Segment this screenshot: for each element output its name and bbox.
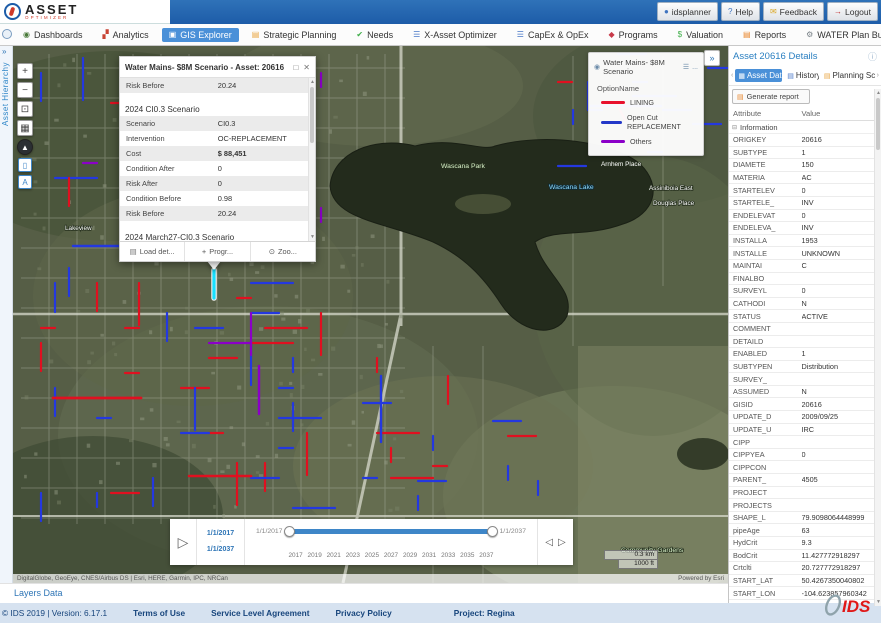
popup-pointer — [207, 261, 221, 270]
legend-entry: Others — [589, 134, 703, 149]
attribute-name: INSTALLA — [729, 236, 802, 245]
attribute-row[interactable]: MAINTAIC — [729, 260, 874, 273]
home-extent-button[interactable]: ⊡ — [17, 101, 33, 117]
nav-tab-label: Programs — [619, 30, 658, 40]
action-label: Load det... — [140, 247, 175, 256]
field-label: Condition After — [120, 164, 218, 173]
valuation-icon: $ — [678, 31, 682, 39]
timeline-step-buttons: ◁ ▷ — [537, 519, 573, 565]
nav-tab-reports[interactable]: ▤Reports — [736, 28, 793, 42]
scroll-down-icon[interactable]: ▼ — [309, 234, 315, 240]
legend-field-name: OptionName — [589, 80, 703, 95]
attribute-value: UNKNOWN — [802, 249, 875, 258]
nav-tab-label: Dashboards — [34, 30, 83, 40]
basemap-button[interactable]: ▦ — [17, 120, 33, 136]
rail-expand-icon[interactable]: » — [2, 47, 6, 56]
privacy-policy-link[interactable]: Privacy Policy — [335, 608, 391, 618]
tab-label: History — [796, 71, 819, 80]
history-icon: ▤ — [787, 72, 794, 80]
user-icon: ● — [664, 7, 669, 16]
slider-left-label: 1/1/2017 — [252, 528, 286, 535]
reports-icon: ▤ — [743, 31, 751, 39]
action-label: Zoo... — [278, 247, 297, 256]
map-attribution: DigitalGlobe, GeoEye, CNES/Airbus DS | E… — [13, 574, 728, 583]
attribute-value: 11.427772918297 — [802, 551, 875, 560]
attribute-row[interactable]: DETAILD — [729, 336, 874, 349]
select-tool-button[interactable]: ▯ — [18, 158, 32, 172]
asset-hierarchy-rail[interactable]: » Asset Hierarchy — [0, 46, 13, 583]
attribute-name: UPDATE_D — [729, 412, 802, 421]
map-label: Arnhem Place — [601, 161, 642, 168]
panel-scrollbar[interactable]: ▲ ▼ — [874, 89, 881, 606]
attribute-name: CATHODI — [729, 299, 802, 308]
tick-label: 2017 — [288, 552, 302, 559]
needs-icon: ✔ — [356, 31, 363, 39]
attribute-row[interactable]: HydCrit9.3 — [729, 537, 874, 550]
attribute-name: Crtclti — [729, 563, 802, 572]
attribute-row[interactable]: START_LAT50.4267350040802 — [729, 575, 874, 588]
attribute-name: DIAMETE — [729, 160, 802, 169]
popup-section-title: 2024 March27-CI0.3 Scenario — [120, 227, 308, 241]
slider-handle-end[interactable] — [487, 526, 498, 537]
nav-tab-analytics[interactable]: ▞Analytics — [96, 28, 156, 42]
ids-logo-text: IDS — [842, 597, 871, 616]
collapse-section-icon[interactable]: ⊟ — [732, 124, 737, 131]
attribute-row[interactable]: SUBTYPENDistribution — [729, 361, 874, 374]
legend-layer-title: Water Mains- $8M Scenario — [603, 58, 680, 76]
tab-planning-sce[interactable]: ▤Planning Sce — [821, 69, 875, 82]
attribute-value: Distribution — [802, 362, 875, 371]
popup-field-row: InterventionOC-REPLACEMENT — [120, 131, 308, 146]
range-start: 1/1/2017 — [207, 530, 234, 538]
popup-field-row: Condition Before0.98 — [120, 191, 308, 206]
tick-label: 2027 — [384, 552, 398, 559]
idsplanner-button[interactable]: ●idsplanner — [657, 2, 718, 21]
timeline-range: 1/1/2017 - 1/1/2037 — [197, 519, 245, 565]
feedback-button[interactable]: ✉Feedback — [763, 2, 824, 21]
water-plan-builder-icon: ⚙ — [806, 31, 813, 39]
popup-actions: ▤Load det...+Progr...⊙Zoo... — [120, 241, 315, 261]
tick-label: 2035 — [460, 552, 474, 559]
attribute-value: 1 — [802, 148, 875, 157]
field-value: $ 88,451 — [218, 149, 308, 158]
powered-by-esri: Powered by Esri — [678, 575, 724, 582]
attribute-row[interactable]: SURVEYL0 — [729, 285, 874, 298]
asset-details-panel: Asset 20616 Details ⓘ ‹▦Asset Data▤Histo… — [728, 46, 881, 603]
field-value: OC-REPLACEMENT — [218, 134, 308, 143]
panel-collapse-button[interactable]: » — [704, 50, 720, 66]
program-button[interactable]: +Progr... — [185, 242, 250, 261]
attribute-name: SURVEY_ — [729, 375, 802, 384]
attribute-row[interactable]: CIPPYEA0 — [729, 449, 874, 462]
field-value: 0.98 — [218, 194, 308, 203]
field-label: Scenario — [120, 119, 218, 128]
attribute-name: STATUS — [729, 312, 802, 321]
attribute-row[interactable]: STARTELEV0 — [729, 184, 874, 197]
top-header-bar: ASSET OPTIMIZER ●idsplanner?Help✉Feedbac… — [0, 0, 881, 24]
attribute-row[interactable]: INSTALLA1953 — [729, 235, 874, 248]
report-icon: ▤ — [737, 93, 744, 101]
help-button[interactable]: ?Help — [721, 2, 760, 21]
range-end: 1/1/2037 — [207, 546, 234, 554]
field-value: 0 — [218, 164, 308, 173]
analytics-icon: ▞ — [103, 31, 109, 39]
compass-button[interactable]: ▲ — [17, 139, 33, 155]
attribute-value: 50.4267350040802 — [802, 576, 875, 585]
scale-ft: 1000 ft — [618, 560, 658, 569]
attribute-row[interactable]: FINALBO — [729, 273, 874, 286]
popup-field-row: Risk Before20.24 — [120, 78, 308, 93]
attribute-name: INSTALLE — [729, 249, 802, 258]
legend-panel: ◉ Water Mains- $8M Scenario ☰ ... Option… — [588, 52, 704, 156]
attribute-name: BodCrit — [729, 551, 802, 560]
panel-body: ▤ Generate report Attribute Value ⊟ Info… — [729, 89, 881, 606]
attribute-value: 0 — [802, 211, 875, 220]
nav-tab-x-asset-optimizer[interactable]: ☰X-Asset Optimizer — [406, 28, 504, 42]
copyright-text: © IDS 2019 | Version: 6.17.1 — [2, 608, 107, 618]
help-icon: ? — [728, 7, 732, 16]
attribute-name: FINALBO — [729, 274, 802, 283]
attribute-row[interactable]: ENDELEVAT0 — [729, 210, 874, 223]
gis-explorer-icon: ▣ — [169, 31, 177, 39]
button-label: Logout — [845, 7, 871, 17]
popup-field-row: Cost$ 88,451 — [120, 146, 308, 161]
legend-swatch — [601, 140, 625, 143]
legend-entries: LININGOpen Cut REPLACEMENTOthers — [589, 95, 703, 149]
attribute-row[interactable]: PARENT_4505 — [729, 474, 874, 487]
attribute-name: MAINTAI — [729, 261, 802, 270]
attribute-value: 4505 — [802, 475, 875, 484]
button-label: Help — [735, 7, 752, 17]
information-label: Information — [740, 123, 778, 132]
popup-maximize-icon[interactable]: □ — [293, 63, 298, 72]
attribute-value: INV — [802, 223, 875, 232]
zoom-to-button[interactable]: ⊙Zoo... — [251, 242, 315, 261]
attribute-row[interactable]: CIPP — [729, 436, 874, 449]
zoom-in-button[interactable]: + — [17, 63, 33, 79]
attribute-name: PARENT_ — [729, 475, 802, 484]
map-controls: +−⊡▦▲▯A — [17, 63, 33, 189]
attribute-value: 2009/09/25 — [802, 412, 875, 421]
attribute-name: SURVEYL — [729, 286, 802, 295]
attribute-name: STARTELE_ — [729, 198, 802, 207]
programs-icon: ◆ — [609, 31, 615, 39]
attribute-row[interactable]: CATHODIN — [729, 298, 874, 311]
field-label: Condition Before — [120, 194, 218, 203]
attribute-row[interactable]: INSTALLEUNKNOWN — [729, 247, 874, 260]
attribute-value: 79.9098064448999 — [802, 513, 875, 522]
tick-label: 2025 — [365, 552, 379, 559]
map-label: Wascana Park — [441, 163, 486, 170]
layer-visibility-icon[interactable]: ◉ — [594, 63, 600, 71]
layers-data-link[interactable]: Layers Data — [14, 588, 63, 598]
nav-tab-water-plan-builder[interactable]: ⚙WATER Plan Builder✕ — [799, 28, 881, 42]
attribute-name: HydCrit — [729, 538, 802, 547]
attribute-value: 20616 — [802, 135, 875, 144]
app-menu-icon[interactable] — [2, 29, 12, 39]
attribute-name: STARTELEV — [729, 186, 802, 195]
field-label: Risk Before — [120, 81, 218, 90]
popup-field-row: ScenarioCI0.3 — [120, 116, 308, 131]
attribute-row[interactable]: ORIGKEY20616 — [729, 134, 874, 147]
legend-more-icon[interactable]: ... — [692, 64, 698, 71]
attribute-row[interactable]: GISID20616 — [729, 398, 874, 411]
tabs-scroll-right-icon[interactable]: › — [877, 72, 879, 79]
tab-label: Planning Sce — [833, 71, 875, 80]
slider-track[interactable] — [286, 525, 495, 539]
tab-label: Asset Data — [747, 71, 782, 80]
popup-scrollbar[interactable]: ▲ ▼ — [308, 78, 315, 241]
field-value: 20.24 — [218, 209, 308, 218]
tabs-scroll-left-icon[interactable]: ‹ — [731, 72, 733, 79]
attribute-name: ASSUMED — [729, 387, 802, 396]
nav-tab-label: GIS Explorer — [180, 30, 232, 40]
attribute-value: ACTIVE — [802, 312, 875, 321]
legend-entry-label: Others — [630, 137, 652, 146]
asset-data-icon: ▦ — [738, 72, 745, 80]
legend-swatch — [601, 101, 625, 104]
attribute-name: GISID — [729, 400, 802, 409]
attribute-name: ENDELEVA_ — [729, 223, 802, 232]
attribute-name: ENABLED — [729, 349, 802, 358]
panel-title: Asset 20616 Details — [733, 51, 868, 62]
attribution-text: DigitalGlobe, GeoEye, CNES/Airbus DS | E… — [17, 575, 228, 582]
attribute-row[interactable]: ENABLED1 — [729, 348, 874, 361]
field-label: Risk After — [120, 179, 218, 188]
layers-strip: Layers Data — [0, 583, 728, 603]
attribute-row[interactable]: SURVEY_ — [729, 373, 874, 386]
scroll-up-icon[interactable]: ▲ — [875, 90, 881, 96]
field-label: Risk Before — [120, 209, 218, 218]
attribute-name: SUBTYPE — [729, 148, 802, 157]
nav-tab-label: CapEx & OpEx — [528, 30, 589, 40]
nav-tab-capex-opex[interactable]: ☰CapEx & OpEx — [510, 28, 596, 42]
attribute-row[interactable]: DIAMETE150 — [729, 159, 874, 172]
map-label: Lakeview — [65, 225, 92, 232]
planning-icon: ▤ — [824, 72, 831, 80]
attribute-name: START_LAT — [729, 576, 802, 585]
document-icon: ▤ — [130, 247, 137, 256]
nav-tab-programs[interactable]: ◆Programs — [602, 28, 665, 42]
attribute-row[interactable]: UPDATE_UIRC — [729, 424, 874, 437]
attribute-row[interactable]: CIPPCON — [729, 461, 874, 474]
nav-tab-label: WATER Plan Builder — [817, 30, 881, 40]
attribute-value: 9.3 — [802, 538, 875, 547]
attribute-value: 0 — [802, 186, 875, 195]
legend-entry-label: LINING — [630, 98, 654, 107]
scale-km: 0.3 km — [604, 550, 658, 560]
time-slider: ▷ 1/1/2017 - 1/1/2037 1/1/2017 1/1/2037 … — [170, 519, 573, 565]
attribute-row[interactable]: ASSUMEDN — [729, 386, 874, 399]
attribute-name: CIPP — [729, 438, 802, 447]
legend-list-icon[interactable]: ☰ — [683, 63, 689, 71]
attribute-value: N — [802, 387, 875, 396]
attribute-value: 150 — [802, 160, 875, 169]
magnifier-icon: ⊙ — [269, 247, 275, 256]
asset-popup: Water Mains- $8M Scenario - Asset: 20616… — [119, 56, 316, 262]
nav-tab-label: Analytics — [113, 30, 149, 40]
generate-report-button[interactable]: ▤ Generate report — [732, 89, 810, 104]
ids-brand-logo: IDS — [822, 591, 878, 619]
slider-handle-start[interactable] — [284, 526, 295, 537]
attribute-name: PROJECTS — [729, 501, 802, 510]
action-label: Progr... — [209, 247, 233, 256]
attribute-tool-button[interactable]: A — [18, 175, 32, 189]
attribute-row[interactable]: PROJECT — [729, 487, 874, 500]
attribute-row[interactable]: STARTELE_INV — [729, 197, 874, 210]
footer-bar: © IDS 2019 | Version: 6.17.1 Terms of Us… — [0, 603, 881, 623]
attribute-name: ENDELEVAT — [729, 211, 802, 220]
attribute-column-header: Attribute — [729, 109, 802, 118]
map-label: Douglas Place — [653, 200, 695, 207]
attribute-row[interactable]: ENDELEVA_INV — [729, 222, 874, 235]
tick-label: 2021 — [327, 552, 341, 559]
nav-tab-label: X-Asset Optimizer — [424, 30, 497, 40]
popup-body: ▲ ▼ Risk Before20.242024 CI0.3 ScenarioS… — [120, 78, 315, 241]
field-value: 20.24 — [218, 81, 308, 90]
attribute-row[interactable]: SHAPE_L79.9098064448999 — [729, 512, 874, 525]
strategic-planning-icon: ▤ — [252, 31, 260, 39]
nav-tab-label: Strategic Planning — [263, 30, 336, 40]
service-level-agreement-link[interactable]: Service Level Agreement — [211, 608, 309, 618]
attribute-value: AC — [802, 173, 875, 182]
logout-icon: → — [834, 7, 842, 16]
tick-label: 2019 — [308, 552, 322, 559]
attribute-value: IRC — [802, 425, 875, 434]
attribute-value: 1 — [802, 349, 875, 358]
attribute-name: COMMENT — [729, 324, 802, 333]
play-button[interactable]: ▷ — [170, 519, 197, 565]
feedback-icon: ✉ — [770, 7, 777, 16]
logout-button[interactable]: →Logout — [827, 2, 878, 21]
attribute-name: DETAILD — [729, 337, 802, 346]
attribute-row[interactable]: UPDATE_D2009/09/25 — [729, 411, 874, 424]
logo-text-asset: ASSET — [25, 4, 78, 15]
asset-hierarchy-label: Asset Hierarchy — [1, 62, 10, 126]
panel-tabs: ‹▦Asset Data▤History▤Planning Sce› — [729, 66, 881, 86]
plus-icon: + — [202, 247, 206, 256]
attribute-name: CIPPYEA — [729, 450, 802, 459]
attribute-value: N — [802, 299, 875, 308]
slider-ticks: 2017201920212023202520272029203120332035… — [286, 550, 495, 559]
attribute-table-header: Attribute Value — [729, 107, 874, 121]
attribute-row[interactable]: SUBTYPE1 — [729, 147, 874, 160]
attribute-value: 20616 — [802, 400, 875, 409]
legend-entry: LINING — [589, 95, 703, 110]
nav-tab-gis-explorer[interactable]: ▣GIS Explorer — [162, 28, 239, 42]
map-label: Wascana Lake — [549, 184, 594, 191]
nav-tab-strategic-planning[interactable]: ▤Strategic Planning — [245, 28, 344, 42]
slider-right-label: 1/1/2037 — [496, 528, 530, 535]
popup-field-row: Condition After0 — [120, 161, 308, 176]
popup-section-title: 2024 CI0.3 Scenario — [120, 99, 308, 116]
legend-entry: Open Cut REPLACEMENT — [589, 110, 703, 134]
attribute-row[interactable]: pipeAge63 — [729, 524, 874, 537]
terms-of-use-link[interactable]: Terms of Use — [133, 608, 185, 618]
attribute-row[interactable]: PROJECTS — [729, 499, 874, 512]
attribute-row[interactable]: COMMENT — [729, 323, 874, 336]
attribute-name: CIPPCON — [729, 463, 802, 472]
popup-close-icon[interactable]: ✕ — [303, 63, 310, 72]
map-scalebar: 0.3 km 1000 ft — [604, 550, 658, 569]
popup-title: Water Mains- $8M Scenario - Asset: 20616 — [125, 63, 288, 72]
header-action-buttons: ●idsplanner?Help✉Feedback→Logout — [657, 2, 878, 21]
attribute-name: SUBTYPEN — [729, 362, 802, 371]
attribute-row[interactable]: BodCrit11.427772918297 — [729, 550, 874, 563]
attribute-row[interactable]: STATUSACTIVE — [729, 310, 874, 323]
field-value: 0 — [218, 179, 308, 188]
step-back-button[interactable]: ◁ — [545, 537, 553, 548]
panel-info-icon[interactable]: ⓘ — [868, 50, 877, 63]
nav-tab-label: Valuation — [686, 30, 723, 40]
asset-optimizer-logo-icon — [4, 3, 21, 20]
attribute-name: ORIGKEY — [729, 135, 802, 144]
scroll-up-icon[interactable]: ▲ — [309, 79, 315, 85]
load-details-button[interactable]: ▤Load det... — [120, 242, 185, 261]
value-column-header: Value — [802, 109, 875, 118]
attribute-name: MATERIA — [729, 173, 802, 182]
nav-tab-dashboards[interactable]: ◉Dashboards — [16, 28, 90, 42]
tick-label: 2037 — [479, 552, 493, 559]
step-forward-button[interactable]: ▷ — [558, 537, 566, 548]
tick-label: 2023 — [346, 552, 360, 559]
attribute-value: 1953 — [802, 236, 875, 245]
attribute-name: START_LON — [729, 589, 802, 598]
attribute-name: UPDATE_U — [729, 425, 802, 434]
attribute-name: pipeAge — [729, 526, 802, 535]
attribute-row[interactable]: MATERIAAC — [729, 172, 874, 185]
information-section-header[interactable]: ⊟ Information — [729, 121, 874, 134]
map-label: Assiniboia East — [649, 185, 693, 192]
zoom-out-button[interactable]: − — [17, 82, 33, 98]
button-label: Feedback — [780, 7, 817, 17]
attribute-row[interactable]: Crtclti20.727772918297 — [729, 562, 874, 575]
project-label: Project: Regina — [454, 608, 515, 618]
attribute-value: 0 — [802, 286, 875, 295]
attribute-value: C — [802, 261, 875, 270]
tick-label: 2033 — [441, 552, 455, 559]
generate-report-label: Generate report — [747, 92, 799, 101]
main-navigation-bar: ◉Dashboards▞Analytics▣GIS Explorer▤Strat… — [0, 24, 881, 46]
capex-opex-icon: ☰ — [517, 31, 524, 39]
tab-history[interactable]: ▤History — [784, 69, 819, 82]
app-root: ASSET OPTIMIZER ●idsplanner?Help✉Feedbac… — [0, 0, 881, 623]
tick-label: 2031 — [422, 552, 436, 559]
attribute-value: INV — [802, 198, 875, 207]
legend-entry-label: Open Cut REPLACEMENT — [627, 113, 703, 131]
tick-label: 2029 — [403, 552, 417, 559]
attribute-value: 0 — [802, 450, 875, 459]
app-logo: ASSET OPTIMIZER — [0, 0, 170, 24]
attribute-value: 63 — [802, 526, 875, 535]
nav-tab-label: Reports — [755, 30, 787, 40]
x-asset-optimizer-icon: ☰ — [413, 31, 420, 39]
attribute-name: SHAPE_L — [729, 513, 802, 522]
dashboards-icon: ◉ — [23, 31, 30, 39]
field-label: Intervention — [120, 134, 218, 143]
button-label: idsplanner — [672, 7, 711, 17]
legend-swatch — [601, 121, 622, 124]
tab-asset-data[interactable]: ▦Asset Data — [735, 69, 782, 82]
attribute-value: 20.727772918297 — [802, 563, 875, 572]
nav-tab-valuation[interactable]: $Valuation — [671, 28, 730, 42]
popup-field-row: Risk Before20.24 — [120, 206, 308, 221]
popup-field-row: Risk After0 — [120, 176, 308, 191]
nav-tab-label: Needs — [367, 30, 393, 40]
nav-tab-needs[interactable]: ✔Needs — [349, 28, 400, 42]
nav-tabs: ◉Dashboards▞Analytics▣GIS Explorer▤Strat… — [16, 28, 881, 42]
field-label: Cost — [120, 149, 218, 158]
